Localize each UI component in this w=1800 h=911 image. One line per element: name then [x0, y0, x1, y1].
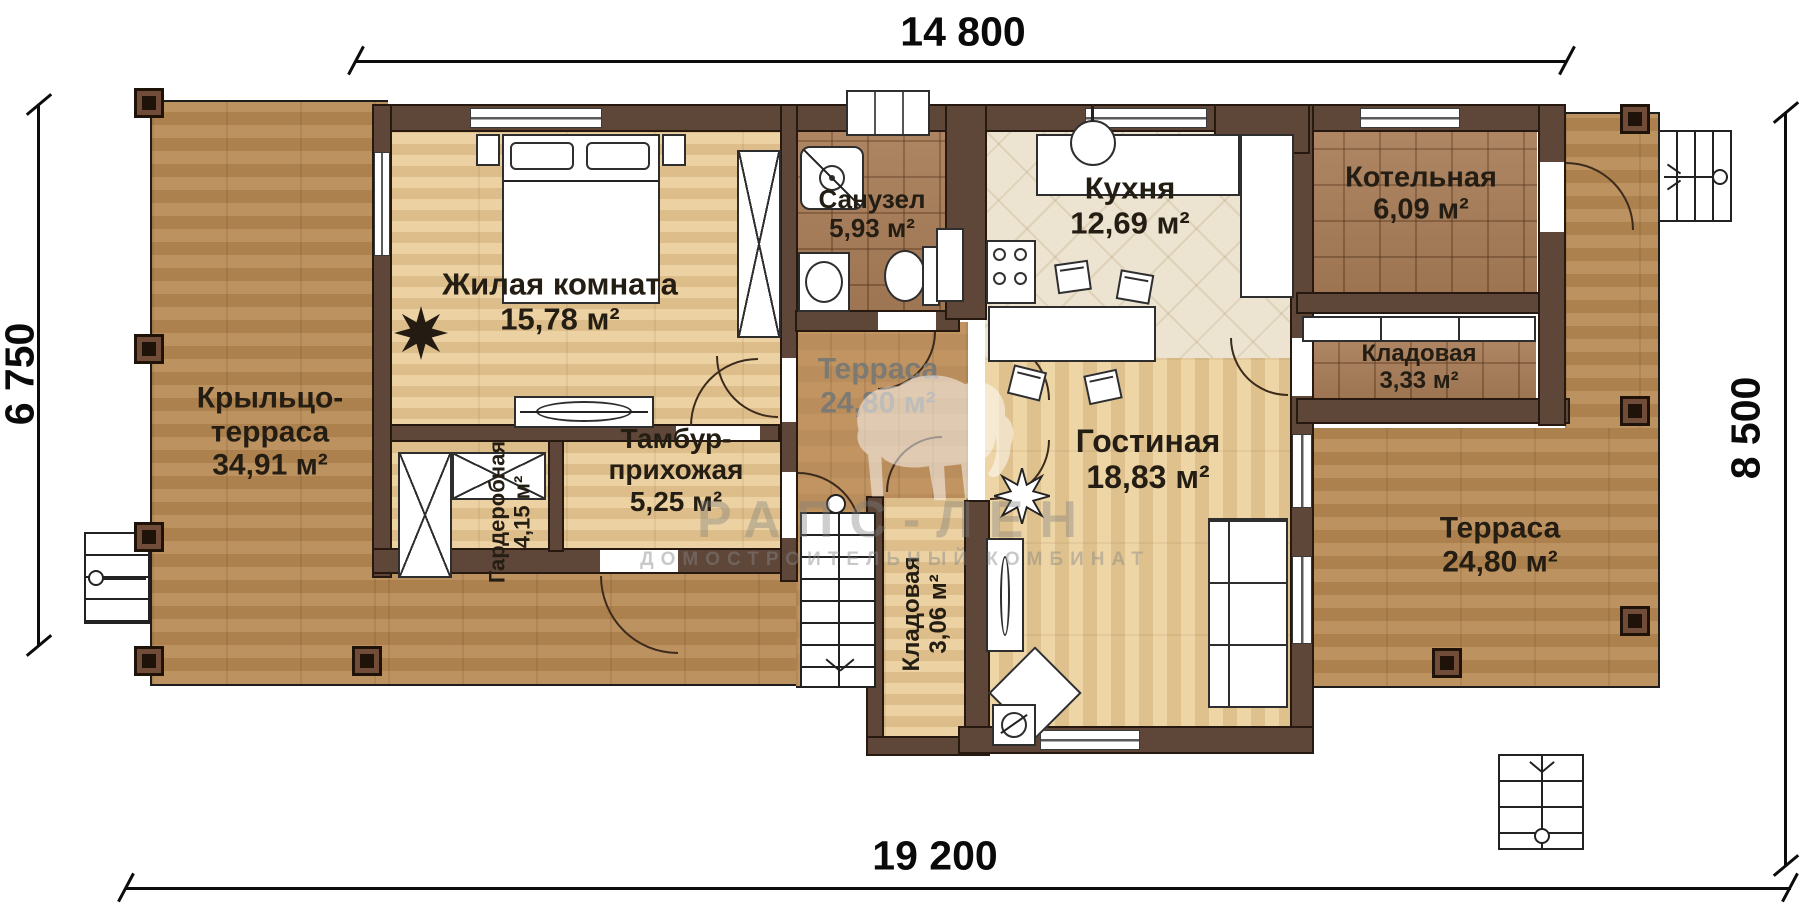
kitchen-counter-right [1240, 134, 1294, 298]
fireplace-stove-icon [992, 704, 1036, 746]
plant-icon [394, 306, 448, 360]
dimension-bottom-value: 19 200 [872, 833, 997, 880]
window [1292, 556, 1312, 644]
dimension-top-value: 14 800 [900, 9, 1025, 56]
window [1292, 434, 1312, 508]
door-opening [878, 312, 936, 330]
watermark-brand: РАПС-ЛЕН [697, 490, 1093, 550]
window [374, 152, 390, 256]
room-label-lounge: Гостиная18,83 м² [1076, 424, 1221, 496]
column-post [352, 646, 382, 676]
room-label-porch-terrace: Крыльцо-терраса34,91 м² [197, 382, 344, 483]
wall-east [1538, 104, 1566, 426]
sink [798, 252, 850, 312]
kitchen-sink-icon [1070, 120, 1116, 166]
kitchen-island [988, 306, 1156, 362]
column-post [1620, 396, 1650, 426]
room-label-wardrobe: Гардеробная4,15 м² [485, 441, 534, 583]
column-post [134, 88, 164, 118]
column-post [1620, 606, 1650, 636]
faucet-icon [1091, 104, 1094, 122]
room-label-boiler-room: Котельная6,09 м² [1345, 162, 1497, 227]
floor-plan: Крыльцо-терраса34,91 м² Жилая комната15,… [0, 0, 1800, 911]
door-opening [1540, 162, 1564, 232]
window [470, 108, 602, 128]
room-label-kitchen: Кухня12,69 м² [1070, 171, 1189, 240]
dimension-line-bottom [125, 887, 1791, 890]
dimension-left-value: 6 750 [0, 323, 44, 426]
room-label-terrace-right: Терраса24,80 м² [1440, 511, 1561, 578]
door-opening [1292, 338, 1312, 396]
room-label-living-room: Жилая комната15,78 м² [442, 267, 678, 336]
nightstand [662, 134, 686, 166]
closet [398, 452, 452, 578]
dimension-line-right [1784, 112, 1787, 866]
bathroom-shaft [936, 228, 964, 302]
porch-terrace-floor-south [388, 572, 798, 686]
terrace-right-floor-north [1565, 112, 1660, 430]
window [1360, 108, 1460, 128]
stove-icon [986, 240, 1036, 304]
wall-wardrobe-hall [548, 440, 564, 552]
wardrobe-cabinet [737, 150, 781, 338]
room-label-storage-north: Кладовая3,33 м² [1362, 341, 1477, 395]
dimension-right-value: 8 500 [1723, 377, 1770, 480]
chair [1054, 260, 1092, 294]
watermark-subtitle: ДОМОСТРОИТЕЛЬНЫЙ КОМБИНАТ [640, 549, 1150, 571]
entry-step-box [846, 90, 930, 136]
column-post [134, 646, 164, 676]
column-post [1620, 104, 1650, 134]
entry-steps-southeast [1498, 754, 1584, 850]
door-opening [782, 358, 796, 422]
window [1040, 730, 1140, 750]
room-label-bathroom: Санузел5,93 м² [819, 185, 926, 243]
nightstand [476, 134, 500, 166]
toilet [884, 250, 926, 302]
column-post [134, 522, 164, 552]
entry-steps-northeast [1658, 130, 1732, 222]
column-post [134, 334, 164, 364]
column-post [1432, 648, 1462, 678]
wall-storage-north-south [1296, 398, 1570, 424]
dimension-line-top [355, 60, 1567, 63]
wall-boiler-south [1296, 292, 1566, 314]
storage-shelf [1302, 316, 1536, 342]
room-label-storage-south: Кладовая3,06 м² [899, 557, 953, 672]
chair [1116, 269, 1155, 304]
sofa [1208, 518, 1288, 708]
